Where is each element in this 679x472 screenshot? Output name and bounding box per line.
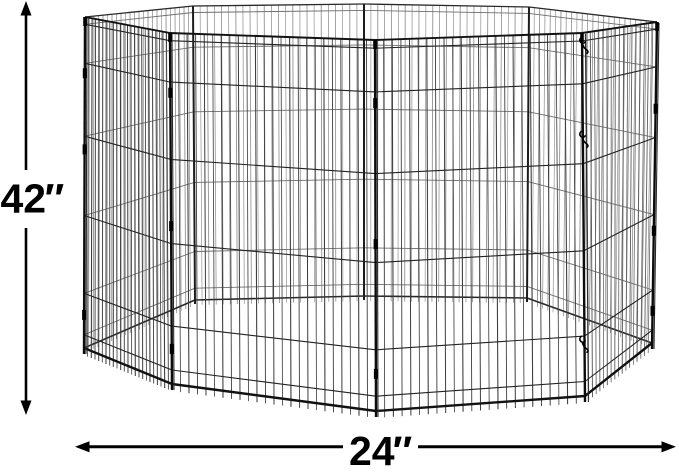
svg-text:42″: 42″ <box>1 175 65 221</box>
svg-text:24″: 24″ <box>349 428 412 467</box>
